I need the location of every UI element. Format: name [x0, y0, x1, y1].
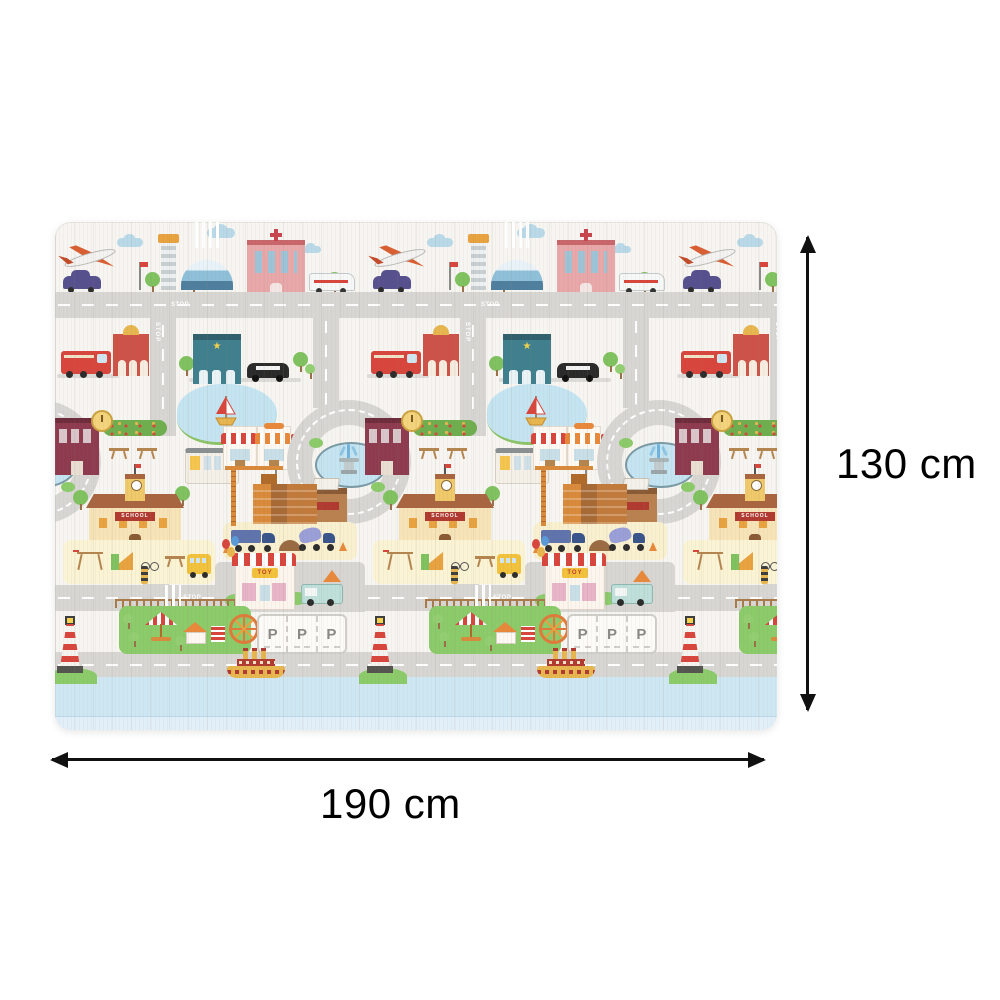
stop-marking: STOP	[154, 322, 160, 342]
mixer-drum	[298, 526, 323, 545]
ambulance-icon	[619, 273, 665, 291]
truck-body	[301, 584, 343, 604]
hospital-windows	[255, 251, 297, 273]
clock-sign-icon	[711, 410, 733, 432]
tree-icon	[693, 490, 708, 505]
carousel-base	[151, 637, 171, 641]
police-car-icon	[247, 363, 289, 378]
tree-icon	[615, 364, 625, 374]
school-building: SCHOOL	[709, 472, 777, 550]
picnic-table-icon	[165, 556, 185, 559]
school-sign: SCHOOL	[115, 512, 155, 521]
cement-mixer-icon	[603, 528, 647, 548]
steamboat-icon	[225, 646, 287, 680]
hotdog-shop-building	[257, 426, 291, 470]
swing-seat	[383, 550, 389, 552]
mixer-drum	[608, 526, 633, 545]
clock-icon	[441, 480, 452, 491]
height-dimension-arrow	[806, 237, 809, 710]
road-horizontal-top	[55, 292, 365, 318]
slide-icon	[111, 552, 133, 570]
gazebo-roof	[183, 622, 207, 632]
crosswalk	[195, 222, 219, 248]
ferris-wheel-icon	[229, 614, 259, 644]
picnic-table-icon	[729, 448, 749, 451]
hotdog-sign-icon	[574, 423, 594, 429]
boat-deck	[237, 659, 275, 666]
toy-shop-building: TOY	[235, 558, 295, 610]
carousel-base	[771, 637, 777, 641]
crosswalk	[505, 222, 529, 248]
school-roof	[706, 494, 777, 508]
car-icon	[373, 276, 411, 289]
tree-icon	[73, 490, 88, 505]
road-vertical	[313, 318, 339, 408]
fire-station-building	[733, 334, 769, 376]
fire-truck-icon	[371, 351, 421, 374]
clock-sign-icon	[401, 410, 423, 432]
traffic-light-icon	[761, 566, 768, 584]
carousel-pole	[160, 624, 162, 638]
shop-door	[260, 585, 270, 601]
ferris-wheel-icon	[539, 614, 569, 644]
carousel-base	[461, 637, 481, 641]
lighthouse-icon	[367, 614, 393, 676]
parking-spot: P	[598, 616, 627, 652]
swing-icon	[697, 552, 723, 572]
parking-spot: P	[318, 616, 345, 652]
truck-cab	[407, 354, 417, 363]
swing-seat	[693, 550, 699, 552]
fountain-base	[651, 470, 667, 474]
tree-icon	[765, 272, 777, 287]
striped-awning	[221, 433, 257, 444]
width-dimension-arrow	[52, 758, 764, 761]
lighthouse-tower	[370, 624, 390, 668]
balloons-icon	[532, 539, 552, 565]
bush-icon	[619, 438, 633, 448]
tree-icon	[383, 490, 398, 505]
airport-terminal-icon	[491, 260, 543, 290]
truck-body	[611, 584, 653, 604]
tree-icon	[179, 356, 194, 371]
truck-cab	[323, 533, 335, 543]
tree-icon	[145, 272, 160, 287]
picnic-table-icon	[419, 448, 439, 451]
shop-window	[242, 583, 256, 601]
lighthouse-base	[677, 666, 703, 673]
school-sign: SCHOOL	[425, 512, 465, 521]
city-pattern-tile: STOP STOP ★	[675, 222, 777, 730]
clock-icon	[131, 480, 142, 491]
lighthouse-base	[57, 666, 83, 673]
umbrella-icon	[633, 570, 651, 582]
medical-cross-icon	[580, 229, 592, 241]
carousel-icon	[145, 612, 177, 642]
airplane-icon	[677, 236, 743, 280]
striped-awning	[255, 433, 291, 444]
lighthouse-lamp	[685, 616, 695, 625]
sailboat-icon	[523, 394, 549, 428]
slide-icon	[421, 552, 443, 570]
tree-icon	[455, 272, 470, 287]
school-bus-icon	[497, 554, 521, 574]
school-building: SCHOOL	[89, 472, 181, 550]
flag-icon	[139, 262, 141, 290]
umbrella-icon	[323, 570, 341, 582]
building-under-construction	[253, 484, 317, 524]
police-station-building: ★	[193, 334, 241, 384]
lighthouse-base	[367, 666, 393, 673]
striped-awning	[531, 433, 567, 444]
building-under-construction	[563, 484, 627, 524]
awning-shop-building	[533, 426, 567, 470]
road-horizontal-bottom	[55, 652, 365, 677]
gazebo-body	[186, 632, 206, 644]
gazebo-icon	[493, 622, 517, 644]
lighthouse-lamp	[375, 616, 385, 625]
ambulance-icon	[309, 273, 355, 291]
crane-mast	[541, 468, 546, 526]
truck-cab	[633, 533, 645, 543]
gazebo-icon	[183, 622, 207, 644]
picnic-table-icon	[475, 556, 495, 559]
tree-icon	[749, 632, 759, 642]
truck-cab	[97, 354, 107, 363]
lighthouse-icon	[677, 614, 703, 676]
truck-cab	[717, 354, 727, 363]
flag-icon	[449, 262, 451, 290]
police-star-icon: ★	[503, 342, 551, 352]
fountain-icon	[657, 444, 660, 459]
police-station-building: ★	[503, 334, 551, 384]
fountain-icon	[347, 444, 350, 459]
stop-marking: STOP	[481, 302, 499, 308]
hospital-windows	[565, 251, 607, 273]
ice-cream-truck-icon	[301, 574, 343, 606]
police-star-icon: ★	[193, 342, 241, 352]
airport-terminal-icon	[181, 260, 233, 290]
balloons-icon	[222, 539, 242, 565]
playground-area	[373, 540, 525, 584]
tree-icon	[129, 632, 139, 642]
stop-marking: STOP	[464, 322, 470, 342]
swing-seat	[73, 550, 79, 552]
traffic-cone-icon	[339, 542, 347, 551]
sailboat-icon	[213, 394, 239, 428]
airplane-icon	[57, 236, 123, 280]
school-building: SCHOOL	[399, 472, 491, 550]
tree-icon	[489, 356, 504, 371]
parking-spot: P	[628, 616, 655, 652]
tree-icon	[433, 614, 443, 624]
school-bus-icon	[187, 554, 211, 574]
truck-cab	[262, 533, 275, 543]
clock-sign-icon	[91, 410, 113, 432]
fire-station-building	[423, 334, 459, 376]
striped-awning	[565, 433, 601, 444]
city-pattern: STOP STOP ★	[55, 222, 777, 730]
fire-truck-icon	[681, 351, 731, 374]
tree-icon	[305, 364, 315, 374]
height-dimension-label: 130 cm	[836, 440, 977, 488]
ticket-stand-icon	[521, 626, 535, 642]
picnic-table-icon	[757, 448, 777, 451]
tree-icon	[123, 614, 133, 624]
picnic-table-icon	[137, 448, 157, 451]
slide-icon	[731, 552, 753, 570]
swing-icon	[387, 552, 413, 572]
control-tower-icon	[161, 242, 176, 290]
fire-station-building	[113, 334, 149, 376]
police-car-icon	[557, 363, 599, 378]
awning-shop-building	[223, 426, 257, 470]
steamboat-icon	[535, 646, 597, 680]
clock-icon	[751, 480, 762, 491]
carousel-icon	[455, 612, 487, 642]
gazebo-body	[496, 632, 516, 644]
stop-marking: STOP	[774, 322, 777, 342]
boat-deck	[547, 659, 585, 666]
traffic-cone-icon	[649, 542, 657, 551]
car-icon	[683, 276, 721, 289]
car-icon	[63, 276, 101, 289]
hotdog-shop-building	[567, 426, 601, 470]
picnic-table-icon	[109, 448, 129, 451]
tree-icon	[743, 614, 753, 624]
swing-icon	[77, 552, 103, 572]
toy-shop-sign: TOY	[252, 568, 278, 578]
picnic-table-icon	[447, 448, 467, 451]
crane-mast	[231, 468, 236, 526]
airplane-icon	[367, 236, 433, 280]
fire-truck-icon	[61, 351, 111, 374]
playground-area	[63, 540, 215, 584]
flag-icon	[754, 464, 756, 474]
tree-icon	[439, 632, 449, 642]
traffic-light-icon	[141, 566, 148, 584]
product-image: STOP STOP ★	[0, 0, 1000, 1000]
traffic-light-icon	[451, 566, 458, 584]
toy-shop-building: TOY	[545, 558, 605, 610]
road-vertical	[623, 318, 649, 408]
flag-icon	[759, 262, 761, 290]
cement-mixer-icon	[293, 528, 337, 548]
carousel-canopy	[765, 612, 777, 625]
width-dimension-label: 190 cm	[320, 780, 461, 828]
carousel-icon	[765, 612, 777, 642]
gazebo-roof	[493, 622, 517, 632]
hospital-building	[557, 240, 615, 295]
boat-hull	[537, 666, 595, 678]
parking-spot: P	[288, 616, 317, 652]
fountain-base	[341, 470, 357, 474]
city-pattern-tile: STOP STOP ★	[365, 222, 675, 730]
city-pattern-tile: STOP STOP ★	[55, 222, 365, 730]
medical-cross-icon	[270, 229, 282, 241]
lighthouse-tower	[60, 624, 80, 668]
hotdog-sign-icon	[264, 423, 284, 429]
amusement-park-area	[739, 606, 777, 654]
lighthouse-tower	[680, 624, 700, 668]
hospital-building	[247, 240, 305, 295]
lighthouse-lamp	[65, 616, 75, 625]
school-sign: SCHOOL	[735, 512, 775, 521]
flag-icon	[444, 464, 446, 474]
lighthouse-icon	[57, 614, 83, 676]
shop-door	[570, 585, 580, 601]
carousel-pole	[470, 624, 472, 638]
road-horizontal-bottom	[365, 652, 675, 677]
ice-cream-truck-icon	[611, 574, 653, 606]
road-horizontal-top	[675, 292, 777, 318]
toy-shop-sign: TOY	[562, 568, 588, 578]
shop-window	[552, 583, 566, 601]
bush-icon	[309, 438, 323, 448]
stop-marking: STOP	[171, 302, 189, 308]
truck-cab	[572, 533, 585, 543]
play-mat: STOP STOP ★	[55, 222, 777, 730]
flag-icon	[134, 464, 136, 474]
ticket-stand-icon	[211, 626, 225, 642]
control-tower-icon	[471, 242, 486, 290]
boat-hull	[227, 666, 285, 678]
road-horizontal-top	[365, 292, 675, 318]
